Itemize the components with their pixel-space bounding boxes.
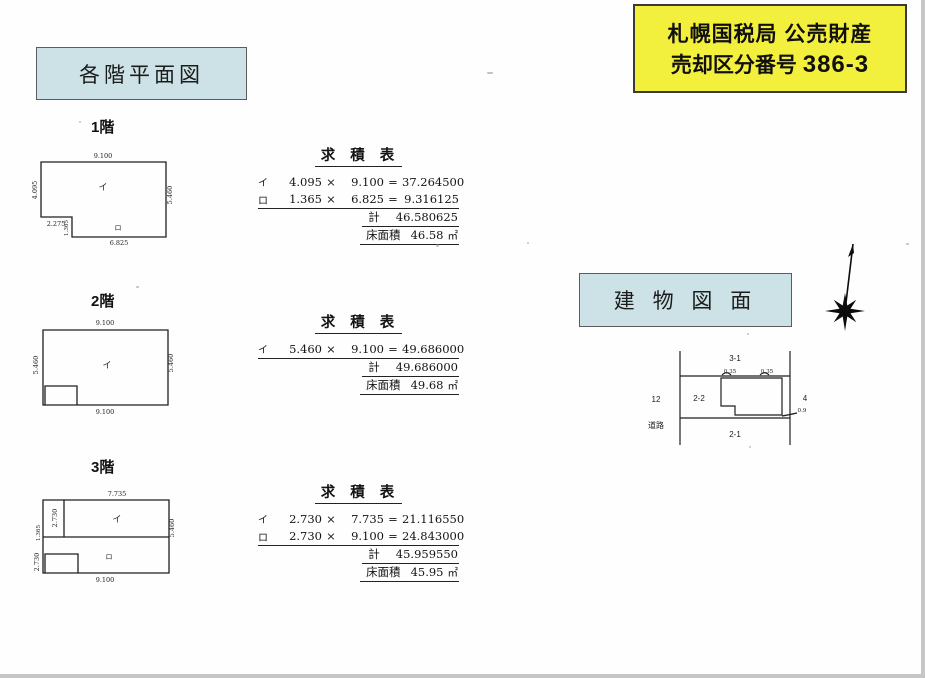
- parcel-south-label: 2-1: [729, 430, 741, 439]
- area-table-title: 求 積 表: [315, 144, 403, 167]
- row-length: 9.100: [340, 342, 384, 356]
- floor-area-value: 45.95㎡: [411, 565, 458, 580]
- row-length: 9.100: [340, 529, 384, 543]
- times-sign: ×: [322, 512, 340, 526]
- table-row: ロ 2.730 × 9.100 = 24.843000: [258, 528, 459, 547]
- floor-1-dim-bottom: 6.825: [110, 239, 129, 247]
- total-label: 計: [368, 546, 380, 562]
- floor-2-dim-top: 9.100: [96, 319, 115, 327]
- parcel-west-label: 12: [652, 395, 661, 404]
- row-width: 1.365: [278, 192, 322, 206]
- floor-2-dim-bottom: 9.100: [96, 408, 115, 416]
- floor-2-stairs: [45, 386, 77, 405]
- row-result: 37.264500: [402, 175, 464, 189]
- row-length: 7.735: [340, 512, 384, 526]
- total-row: 計 46.580625: [258, 209, 459, 227]
- equals-sign: =: [384, 342, 402, 356]
- building-footprint: [721, 378, 782, 415]
- row-mark: ロ: [258, 192, 278, 207]
- floor-3-label: 3階: [91, 456, 114, 477]
- floor-3-dim-bottom: 9.100: [96, 576, 115, 584]
- row-length: 6.825: [340, 192, 384, 206]
- row-result: 49.686000: [402, 342, 464, 356]
- scan-speckle: [436, 244, 439, 247]
- floor-3-dim-right: 5.460: [168, 519, 176, 538]
- floor-3-plan: 7.735 2.730 1.365 2.730 5.460 9.100 イ ロ: [25, 478, 185, 590]
- unit-label: ㎡: [448, 230, 459, 242]
- page-edge-right: [921, 0, 925, 678]
- floor-2-label: 2階: [91, 290, 114, 311]
- lot-number-line: 売却区分番号 386-3: [671, 49, 869, 79]
- floor-3-dim-top: 7.735: [108, 490, 127, 498]
- scan-speckle: [749, 446, 751, 448]
- floor-3-stairs: [45, 554, 78, 573]
- area-table-title: 求 積 表: [315, 481, 403, 504]
- agency-line: 札幌国税局 公売財産: [668, 18, 873, 48]
- floor-1-mark-a: イ: [98, 182, 107, 192]
- equals-sign: =: [384, 175, 402, 189]
- floor-plans-title-box: 各階平面図: [36, 47, 247, 100]
- floor-area-value: 46.58㎡: [411, 228, 458, 243]
- row-length: 9.100: [340, 175, 384, 189]
- row-mark: イ: [258, 341, 278, 356]
- floor-1-dim-strip: 1.365: [64, 220, 70, 236]
- table-row: イ 4.095 × 9.100 = 37.264500: [258, 173, 459, 191]
- floor-plans-title: 各階平面図: [79, 59, 204, 89]
- total-row: 計 45.959550: [258, 546, 459, 564]
- row-width: 2.730: [278, 529, 322, 543]
- row-result: 21.116550: [402, 512, 464, 526]
- floor-area-label: 床面積: [366, 227, 401, 243]
- floor-3-dim-upper-left: 2.730: [51, 509, 59, 528]
- floor-area-label: 床面積: [366, 377, 401, 393]
- floor-1-dim-right: 5.460: [166, 186, 174, 205]
- floor-1-mark-b: ロ: [115, 225, 122, 232]
- unit-label: ㎡: [448, 380, 459, 392]
- unit-label: ㎡: [448, 567, 459, 579]
- building-drawing-title: 建 物 図 面: [614, 285, 758, 315]
- floor-area-row: 床面積 45.95㎡: [258, 564, 459, 582]
- scan-speckle: [136, 286, 139, 288]
- floor-2-dim-right: 5.460: [167, 354, 175, 373]
- scan-speckle: [487, 72, 493, 74]
- floor-2-area-table: 求 積 表 イ 5.460 × 9.100 = 49.686000 計 49.6…: [258, 311, 459, 395]
- table-row: イ 2.730 × 7.735 = 21.116550: [258, 510, 459, 528]
- row-mark: ロ: [258, 529, 278, 544]
- gap-dim: 0.9: [798, 408, 807, 414]
- scan-speckle: [79, 121, 81, 123]
- floor-area-row: 床面積 49.68㎡: [258, 377, 459, 395]
- times-sign: ×: [322, 529, 340, 543]
- site-plan: 3-1 0.35 0.35 12 2-2 道路 2-1 4 0.9: [630, 340, 825, 455]
- floor-2-plan: 9.100 5.460 5.460 9.100 イ: [25, 310, 185, 420]
- row-width: 4.095: [278, 175, 322, 189]
- equals-sign: =: [384, 529, 402, 543]
- row-mark: イ: [258, 511, 278, 526]
- floor-3-mark-a: イ: [112, 514, 121, 524]
- scan-speckle: [747, 333, 749, 335]
- scan-speckle: [527, 242, 529, 244]
- floor-area-row: 床面積 46.58㎡: [258, 227, 459, 245]
- table-row: ロ 1.365 × 6.825 = 9.316125: [258, 191, 459, 210]
- setback-left-dim: 0.35: [724, 369, 737, 375]
- equals-sign: =: [384, 512, 402, 526]
- floor-3-dim-lower-left: 2.730: [33, 553, 41, 572]
- sale-lot-header-box: 札幌国税局 公売財産 売却区分番号 386-3: [633, 4, 907, 93]
- lot-number-label: 売却区分番号: [671, 54, 797, 77]
- row-result: 9.316125: [402, 192, 459, 206]
- total-value: 46.580625: [396, 210, 458, 224]
- floor-area-label: 床面積: [366, 564, 401, 580]
- total-value: 45.959550: [396, 547, 458, 561]
- floor-1-dim-top: 9.100: [94, 152, 113, 160]
- row-mark: イ: [258, 174, 278, 189]
- floor-1-dim-offset: 2.275: [47, 220, 66, 228]
- row-width: 2.730: [278, 512, 322, 526]
- road-label: 道路: [648, 420, 664, 430]
- compass-star: [825, 293, 865, 331]
- parcel-inner-label: 2-2: [693, 394, 705, 403]
- setback-right-dim: 0.35: [761, 369, 774, 375]
- floor-1-area-table: 求 積 表 イ 4.095 × 9.100 = 37.264500 ロ 1.36…: [258, 144, 459, 245]
- total-row: 計 49.686000: [258, 359, 459, 377]
- total-label: 計: [368, 359, 380, 375]
- floor-2-dim-left: 5.460: [32, 356, 40, 375]
- document-page: 札幌国税局 公売財産 売却区分番号 386-3 各階平面図 建 物 図 面 1階…: [0, 0, 925, 678]
- total-label: 計: [368, 209, 380, 225]
- area-table-title: 求 積 表: [315, 311, 403, 334]
- times-sign: ×: [322, 342, 340, 356]
- scan-speckle: [906, 243, 909, 245]
- equals-sign: =: [384, 192, 402, 206]
- floor-2-mark-a: イ: [102, 360, 111, 370]
- row-result: 24.843000: [402, 529, 464, 543]
- times-sign: ×: [322, 192, 340, 206]
- table-row: イ 5.460 × 9.100 = 49.686000: [258, 340, 459, 359]
- floor-1-plan: 9.100 4.095 5.460 2.275 1.365 6.825 イ ロ: [25, 140, 185, 255]
- page-edge-bottom: [0, 674, 925, 678]
- floor-1-dim-left: 4.095: [31, 181, 39, 200]
- total-value: 49.686000: [396, 360, 458, 374]
- row-width: 5.460: [278, 342, 322, 356]
- parcel-top-label: 3-1: [729, 354, 741, 363]
- floor-3-mark-b: ロ: [106, 554, 113, 561]
- building-drawing-title-box: 建 物 図 面: [579, 273, 792, 327]
- floor-3-area-table: 求 積 表 イ 2.730 × 7.735 = 21.116550 ロ 2.73…: [258, 481, 459, 582]
- parcel-east-label: 4: [803, 394, 808, 403]
- north-arrow: [805, 232, 890, 342]
- lot-number-value: 386-3: [803, 51, 869, 78]
- floor-3-dim-mid-left: 1.365: [36, 525, 42, 541]
- times-sign: ×: [322, 175, 340, 189]
- floor-1-label: 1階: [91, 116, 114, 137]
- floor-area-value: 49.68㎡: [411, 378, 458, 393]
